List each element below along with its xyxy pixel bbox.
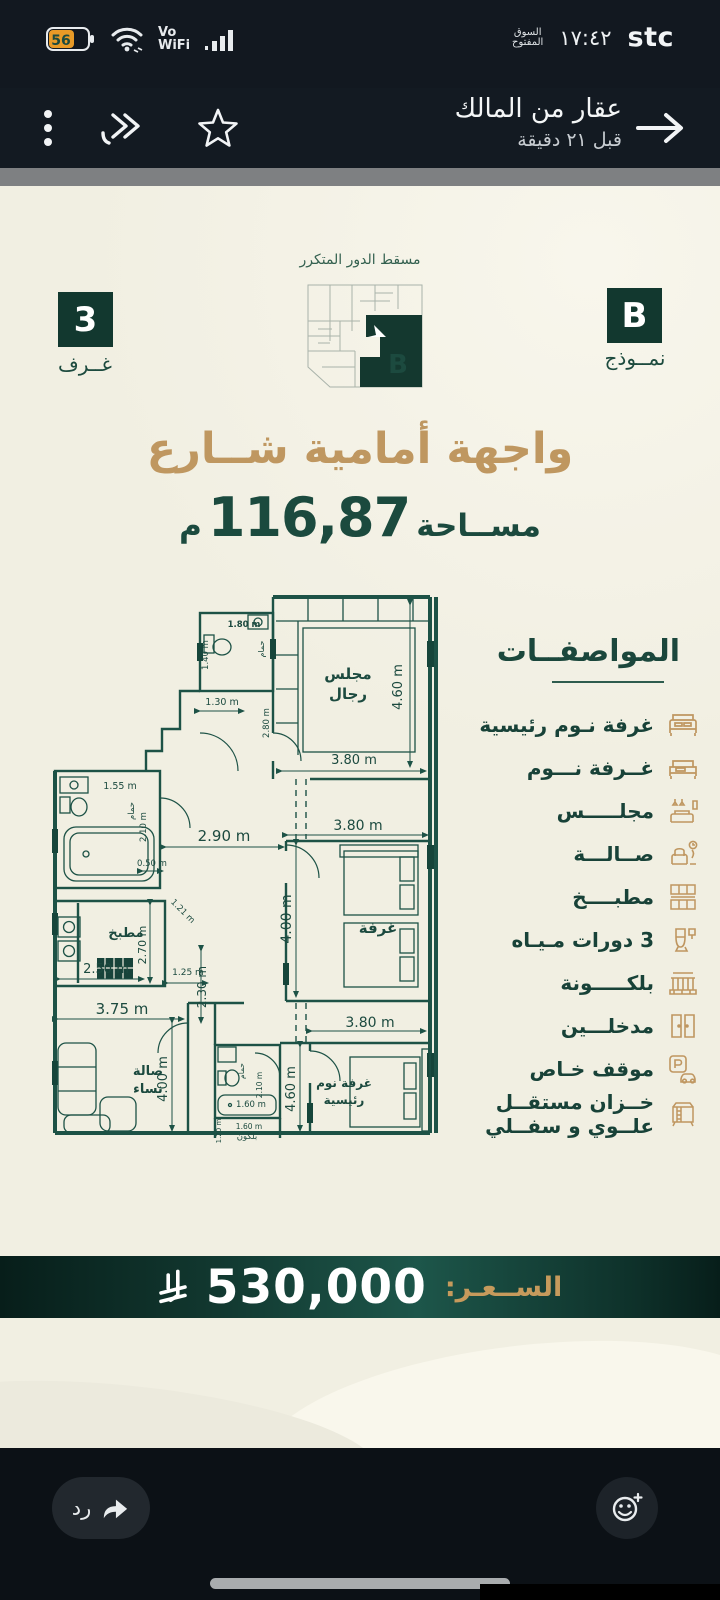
kebab-menu-icon [43, 108, 53, 148]
image-top-strip [0, 168, 720, 186]
emoji-plus-icon [609, 1490, 645, 1526]
spec-item-kitchen: مطبــــخ [452, 875, 700, 918]
room-label: غرفة [359, 919, 398, 937]
star-button[interactable] [194, 104, 242, 152]
dim-label: 2.80 m [262, 708, 272, 738]
kitchen-icon [666, 880, 700, 914]
listing-poster-image[interactable]: مسقط الدور المتكرر B 3 غــرف B نمــوذج و… [0, 186, 720, 1448]
area-value: 116,87 [208, 486, 410, 549]
saudi-riyal-icon [158, 1269, 188, 1305]
facade-headline: واجهة أمامية شــارع [0, 424, 720, 474]
dim-label: 2.10 m [139, 812, 149, 842]
area-unit: م [179, 508, 202, 544]
phone-screen: 56 Vo WiFi السوق المف [0, 0, 720, 1600]
reply-button[interactable]: رد [52, 1477, 150, 1539]
spec-item-bathrooms: 3 دورات مـيـاه [452, 918, 700, 961]
price-value: 530,000 [206, 1260, 427, 1315]
key-plan-thumbnail: B [300, 281, 430, 395]
dim-label: 2.90 m [198, 827, 251, 845]
dim-label: 3.80 m [333, 818, 382, 834]
room-label: غرفة نوم [316, 1076, 372, 1091]
dim-label: 1.21 m [168, 897, 196, 925]
reaction-button[interactable] [596, 1477, 658, 1539]
area-line: مســاحة 116,87 م [0, 486, 720, 549]
room-label: رجال [329, 685, 367, 703]
parking-icon [666, 1052, 700, 1086]
rooms-count-badge: 3 [58, 292, 113, 347]
screen-corner-mask [480, 1584, 720, 1600]
battery-percent: 56 [51, 33, 70, 49]
model-badge-label: نمــوذج [580, 346, 690, 370]
key-plan-caption: مسقط الدور المتكرر [0, 252, 720, 268]
specs-underline [552, 681, 664, 683]
reply-arrow-icon [100, 1494, 130, 1522]
battery-icon: 56 [46, 26, 96, 52]
dim-label: 2.10 m [255, 1072, 264, 1098]
doors-icon [666, 1009, 700, 1043]
dim-label: 1.40 m [201, 640, 211, 670]
dim-label: 1.60 m [236, 1122, 262, 1131]
timestamp: قبل ٢١ دقيقة [455, 129, 622, 151]
status-bar: 56 Vo WiFi السوق المف [0, 0, 720, 88]
dim-label: 2.70 m [136, 926, 149, 965]
back-arrow-icon [634, 110, 686, 146]
sofa-icon [666, 794, 700, 828]
kebab-menu-button[interactable] [34, 106, 62, 150]
room-label: بلكون [237, 1132, 258, 1142]
plan-furniture [58, 597, 430, 1133]
spec-item-master-bedroom: غرفة نـوم رئيسية [452, 703, 700, 746]
specifications-panel: المواصفــات غرفة نـوم رئيسية غــرفة نـــ… [452, 634, 700, 1138]
app-header: عقار من المالك قبل ٢١ دقيقة [0, 88, 720, 168]
price-bar: الســعـر: 530,000 [0, 1256, 720, 1318]
toilet-icon [666, 923, 700, 957]
price-label: الســعـر: [445, 1272, 562, 1303]
bed-icon [666, 751, 700, 785]
spec-item-bedroom: غــرفة نـــوم [452, 746, 700, 789]
bed-large-icon [666, 708, 700, 742]
floor-plan-drawing: مجلس رجال 3.80 m 4.60 m 1.80 m 1.40 m حم… [48, 583, 458, 1147]
dim-label: 3.80 m [331, 753, 377, 768]
plan-dimension-lines [58, 605, 428, 1131]
spec-item-water-tank: خــزان مستقــل علــوي و سفــلي [452, 1090, 700, 1138]
spec-item-entrances: مدخلـــين [452, 1004, 700, 1047]
room-label: حمام [237, 1063, 246, 1079]
room-label: حمام [257, 640, 266, 657]
dim-label: 4.60 m [391, 664, 406, 710]
armchair-icon [666, 837, 700, 871]
clock: ١٧:٤٢ [559, 26, 611, 50]
area-word: مســاحة [416, 508, 541, 544]
specs-title: المواصفــات [452, 634, 700, 669]
spec-item-majlis: مجلـــــس [452, 789, 700, 832]
dim-label: 2.30 m [195, 966, 209, 1008]
dim-label: 4.60 m [284, 1066, 299, 1112]
room-label: رئيسية [324, 1093, 365, 1107]
signal-bars-icon [204, 25, 240, 53]
wifi-icon [110, 24, 144, 54]
forward-button[interactable] [98, 106, 146, 150]
dim-label: 4.00 m [279, 894, 295, 943]
spec-item-balcony: بلكـــــونة [452, 961, 700, 1004]
dim-label: 3.80 m [345, 1015, 394, 1031]
home-indicator[interactable] [210, 1578, 510, 1589]
dim-label: 4.00 m [156, 1056, 171, 1102]
dim-label: 1.55 m [103, 781, 136, 792]
plan-dashed-openings [296, 779, 306, 1043]
model-badge: B [607, 288, 662, 343]
room-label: مجلس [324, 665, 371, 683]
dim-label: 1.30 m [205, 697, 238, 708]
rooms-badge-label: غــرف [30, 352, 140, 376]
key-plan-unit-letter: B [388, 350, 408, 380]
tank-icon [666, 1097, 700, 1131]
room-label: حمام [127, 802, 137, 820]
carrier-label: stc [628, 22, 674, 53]
dim-label: 2.50 m [83, 962, 129, 977]
spec-item-parking: موقف خـاص [452, 1047, 700, 1090]
forward-icon [99, 109, 145, 147]
dim-label: 3.75 m [96, 1000, 149, 1018]
vowifi-label: Vo WiFi [158, 26, 190, 52]
bottom-action-bar: رد [0, 1448, 720, 1600]
dim-label: 1.60 m [236, 1100, 266, 1110]
back-button[interactable] [632, 108, 688, 148]
star-icon [196, 106, 240, 150]
spec-item-hall: صــالـــة [452, 832, 700, 875]
dim-label: 1.20 m [215, 1119, 223, 1143]
page-title: عقار من المالك [455, 94, 622, 124]
dim-label: 0.50 m [137, 859, 167, 869]
reply-label: رد [72, 1496, 92, 1520]
balcony-icon [666, 966, 700, 1000]
opensooq-logo: السوق المفتوح [512, 28, 543, 48]
dim-label: 1.80 m [228, 620, 261, 630]
